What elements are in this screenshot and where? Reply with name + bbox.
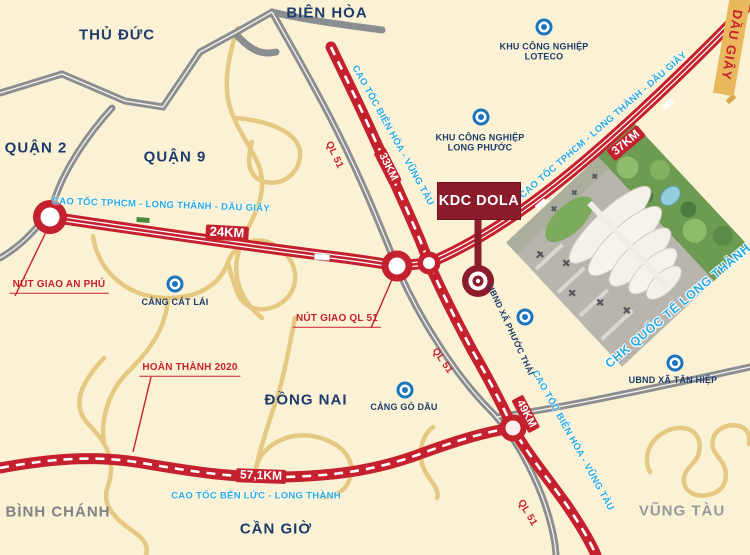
poi-label-long-phuoc-line1: KHU CÔNG NGHIỆP [435, 133, 524, 143]
poi-marker-go-dau-icon [398, 383, 412, 397]
junction-label-ql51: NÚT GIAO QL 51 [293, 313, 381, 328]
region-label-quan-2: QUẬN 2 [5, 139, 68, 156]
junction-label-an-phu: NÚT GIAO AN PHÚ [10, 279, 109, 294]
map-canvas: THỦ ĐỨC BIÊN HÒA QUẬN 2 QUẬN 9 ĐỒNG NAI … [0, 0, 750, 555]
poi-label-loteco-line1: KHU CÔNG NGHIỆP [499, 42, 588, 52]
region-label-can-gio: CẦN GIỜ [240, 520, 312, 537]
distance-label-24km: 24KM [205, 224, 248, 241]
note-label-completion-2020: HOÀN THÀNH 2020 [139, 362, 240, 377]
poi-label-tan-hiep: UBND XÃ TÂN HIỆP [629, 375, 718, 385]
region-label-thu-duc: THỦ ĐỨC [79, 26, 155, 43]
region-label-quan-9: QUẬN 9 [144, 148, 207, 165]
poi-marker-cat-lai-icon [168, 277, 182, 291]
poi-marker-loteco-icon [537, 20, 551, 34]
region-label-vung-tau: VŨNG TÀU [639, 502, 725, 519]
poi-label-go-dau: CẢNG GÒ DẦU [370, 402, 437, 412]
road-network [0, 0, 750, 555]
poi-label-loteco: KHU CÔNG NGHIỆP LOTECO [499, 42, 588, 63]
junction-ql51-circle [382, 251, 413, 282]
poi-marker-tan-hiep-icon [668, 356, 682, 370]
poi-label-cat-lai: CẢNG CÁT LÁI [142, 297, 209, 307]
poi-marker-phuoc-thai-icon [518, 310, 532, 324]
distance-label-57km: 57,1KM [236, 468, 286, 484]
region-label-binh-chanh: BÌNH CHÁNH [6, 503, 111, 520]
project-label-kdc-dola: KDC DOLA [437, 182, 521, 220]
poi-label-loteco-line2: LOTECO [499, 52, 588, 62]
poi-label-long-phuoc-line2: LONG PHƯỚC [435, 143, 524, 153]
poi-label-long-phuoc: KHU CÔNG NGHIỆP LONG PHƯỚC [435, 133, 524, 154]
poi-marker-long-phuoc-icon [474, 110, 488, 124]
region-label-bien-hoa: BIÊN HÒA [286, 4, 367, 21]
junction-small-circle [418, 252, 441, 275]
annotation-pointer-lines [15, 232, 393, 452]
expressway-label-bl-lt: CAO TỐC BẾN LỨC - LONG THÀNH [171, 492, 341, 503]
region-label-dong-nai: ĐỒNG NAI [265, 391, 348, 408]
